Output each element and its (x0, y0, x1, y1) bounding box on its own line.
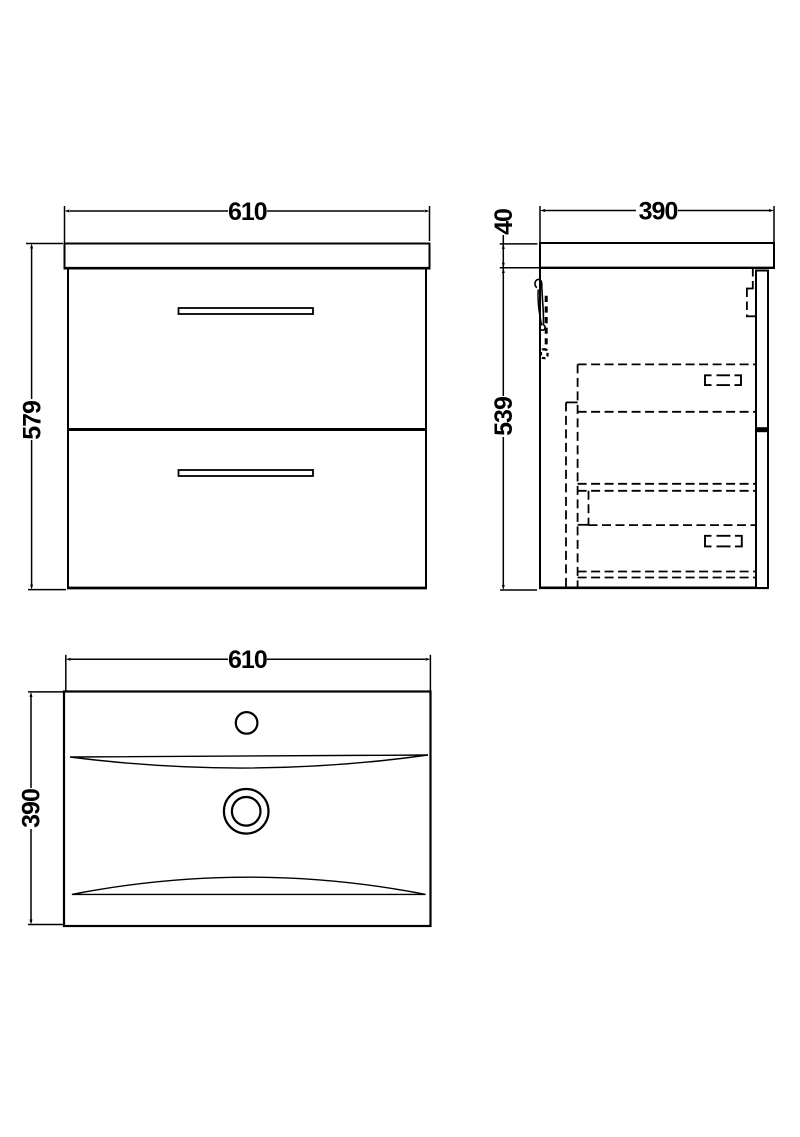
svg-text:390: 390 (639, 198, 678, 226)
svg-text:579: 579 (18, 401, 46, 440)
svg-text:610: 610 (228, 198, 267, 226)
svg-text:40: 40 (490, 209, 518, 235)
svg-text:539: 539 (490, 397, 518, 436)
svg-text:390: 390 (18, 789, 46, 828)
svg-text:610: 610 (228, 646, 267, 674)
